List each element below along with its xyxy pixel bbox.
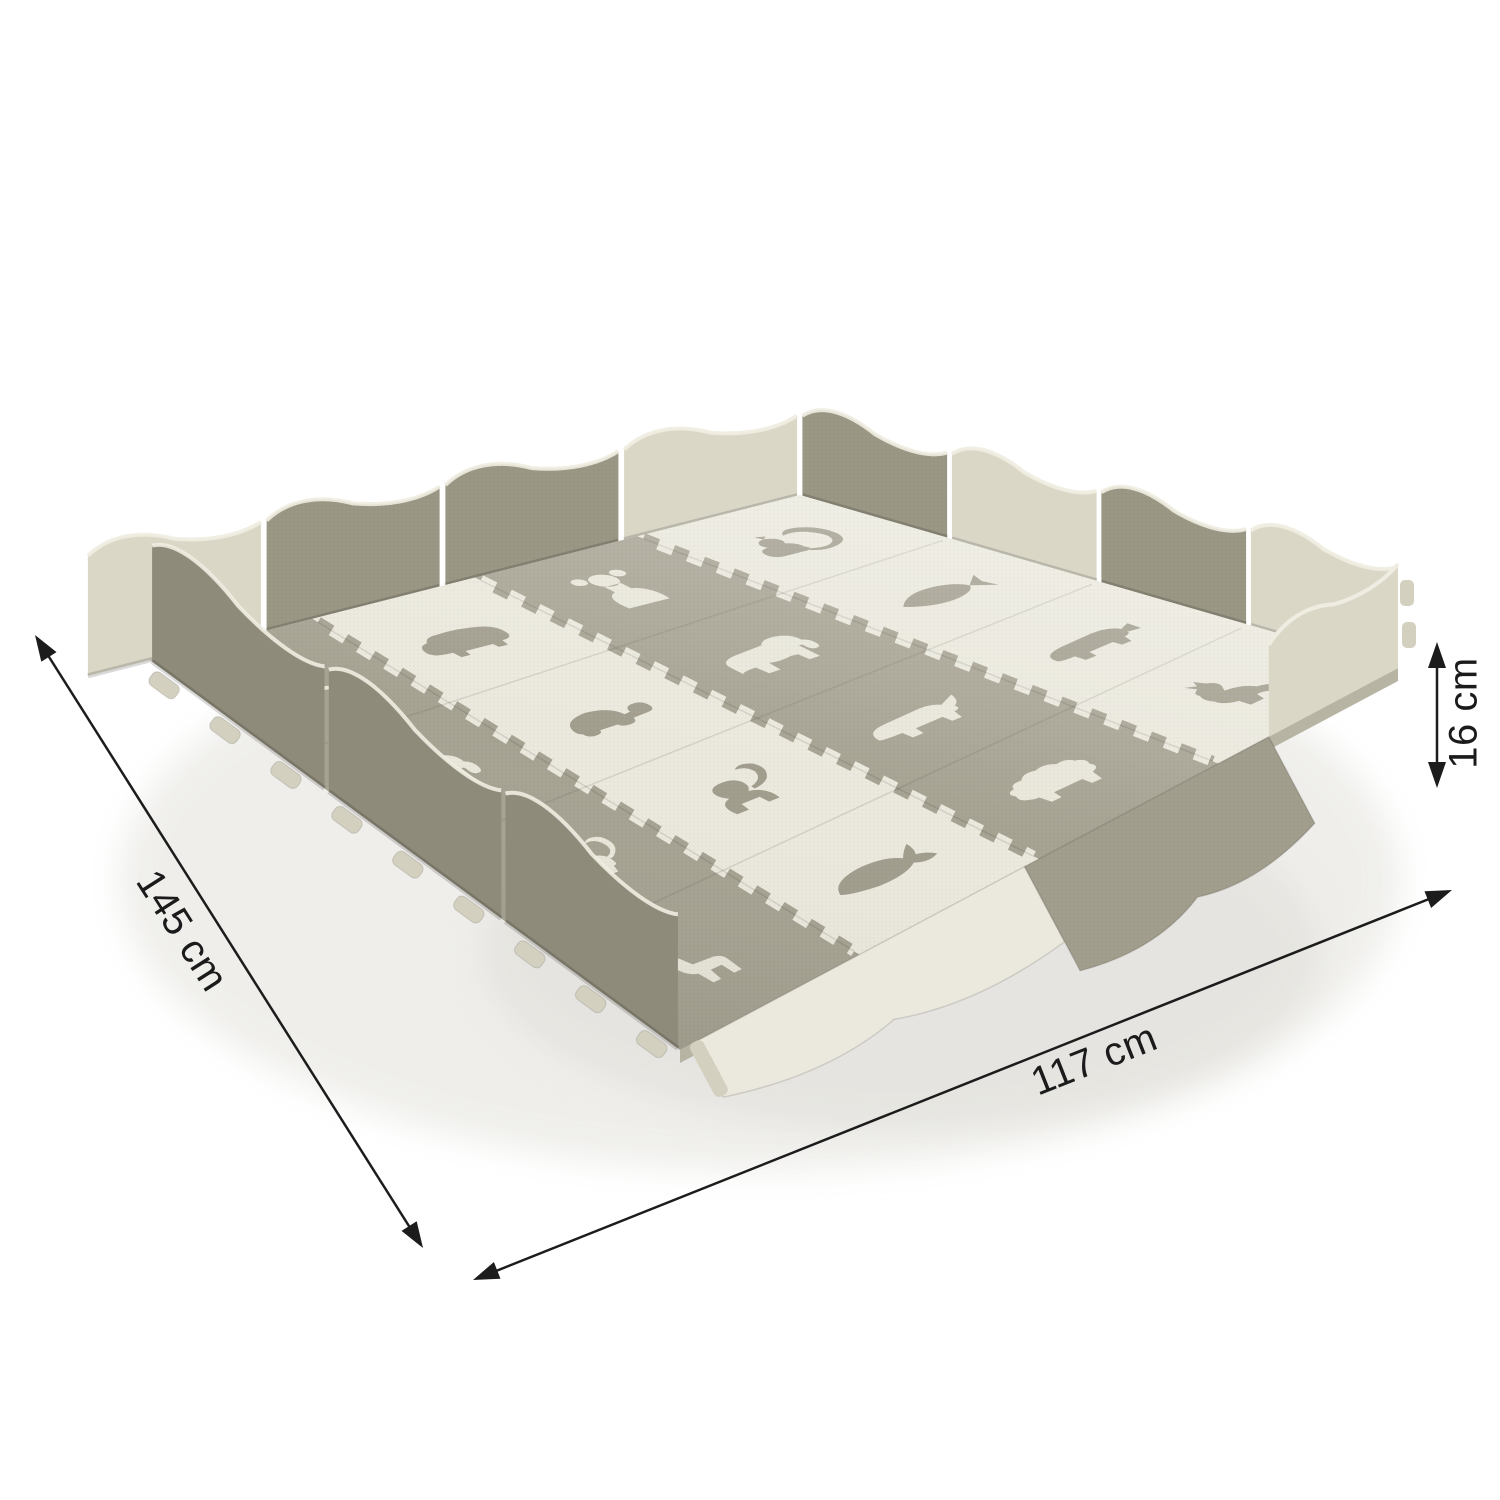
interlock-tab xyxy=(1400,580,1414,606)
height-dimension-label: 16 cm xyxy=(1442,657,1486,768)
dimension-arrowhead xyxy=(402,1221,424,1248)
play-mat-scene: 145 cm 117 cm 16 cm xyxy=(0,0,1500,1500)
product-dimension-image: 145 cm 117 cm 16 cm xyxy=(0,0,1500,1500)
dimension-arrowhead xyxy=(473,1262,501,1280)
dimension-arrowhead xyxy=(35,635,57,662)
dimension-arrowhead xyxy=(1425,890,1453,908)
height-dimension: 16 cm xyxy=(1428,642,1486,788)
interlock-tab xyxy=(1402,622,1416,648)
